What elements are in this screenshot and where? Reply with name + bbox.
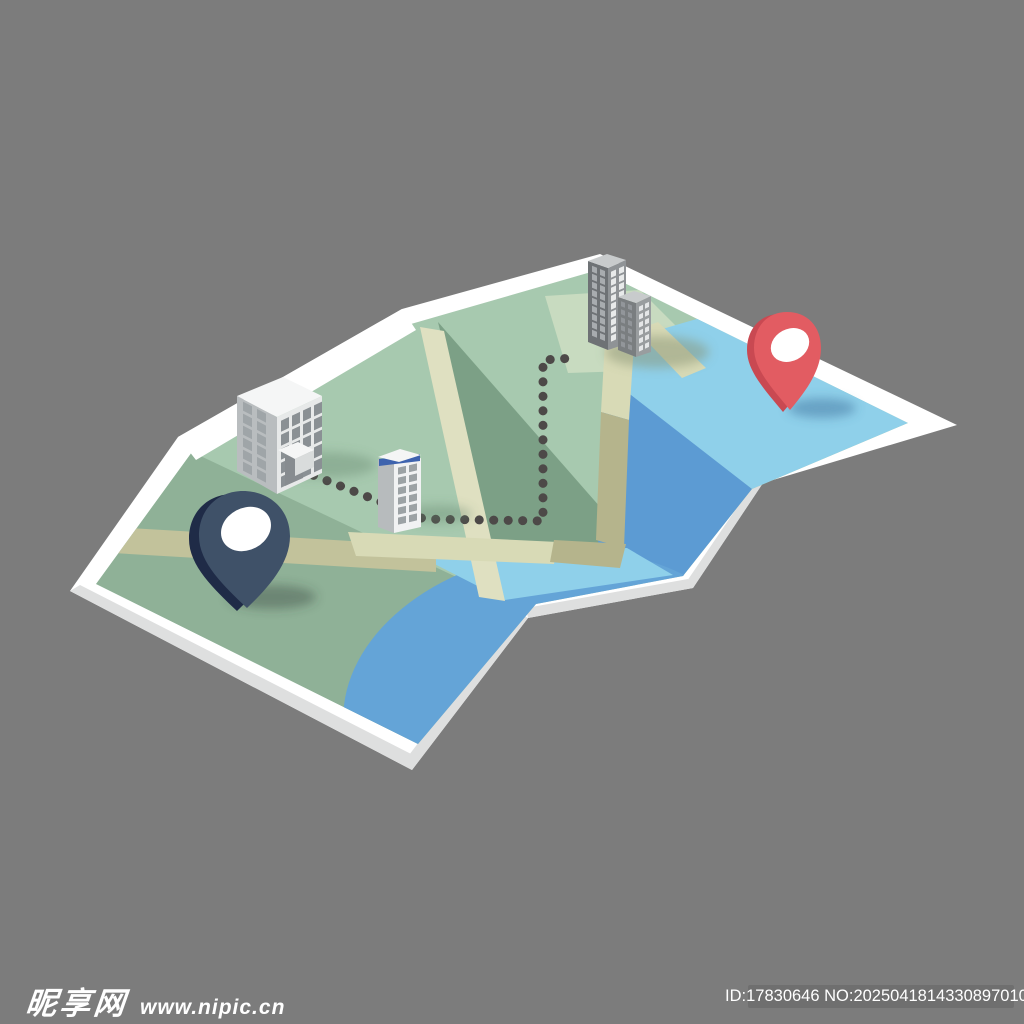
watermark: 昵享网 www.nipic.cn — [26, 978, 285, 1023]
image-id-badge: ID:17830646 NO:20250418143308970101 — [748, 985, 1014, 1008]
destination-pin-shadow — [788, 398, 856, 418]
building-office-block — [237, 377, 322, 494]
short-tower-side-face — [618, 297, 636, 357]
small-tower-side-face — [378, 459, 394, 533]
site-logo-text: 昵享网 — [24, 978, 131, 1023]
road-vertical-shaded — [596, 412, 629, 548]
site-url: www.nipic.cn — [140, 996, 285, 1020]
folded-map-illustration — [0, 0, 1024, 1024]
canvas: 昵享网 www.nipic.cn ID:17830646 NO:20250418… — [0, 0, 1024, 1024]
building-small-tower — [378, 449, 421, 533]
